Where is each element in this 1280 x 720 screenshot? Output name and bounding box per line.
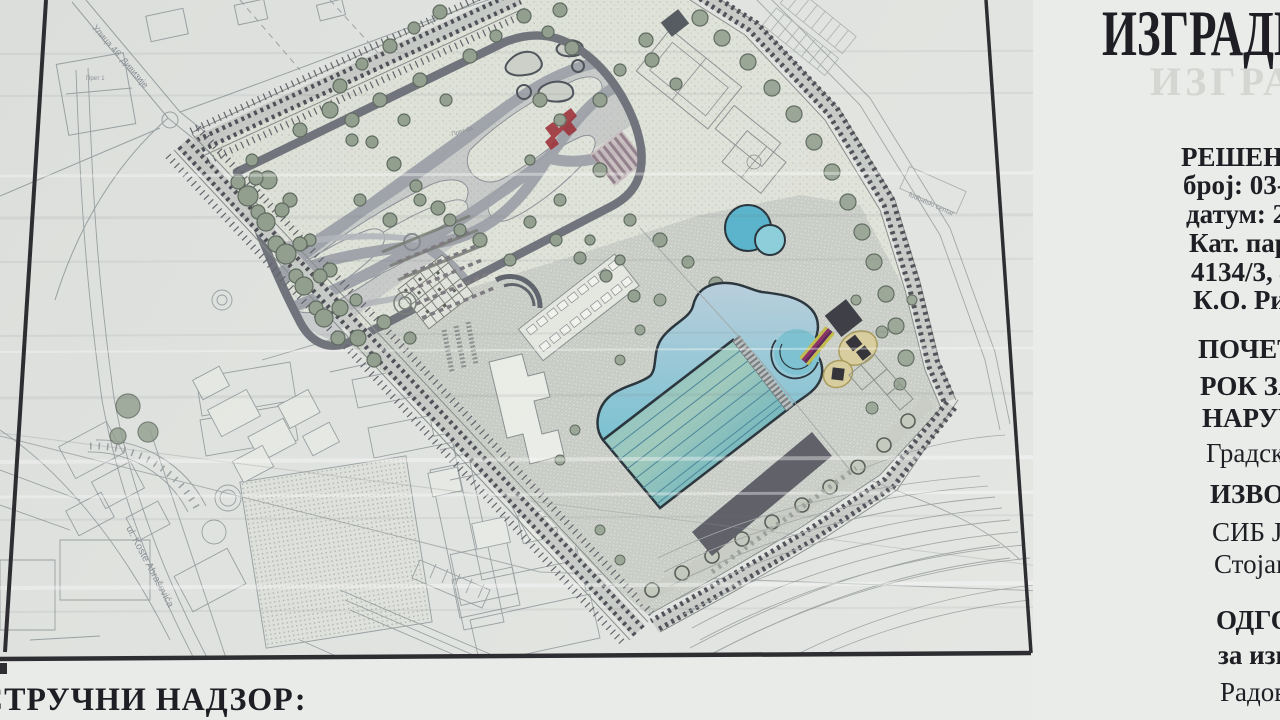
svg-text:број: 03-351-2: број: 03-351-2 [1183, 170, 1280, 200]
svg-text:ИЗВОЂАЧ: ИЗВОЂАЧ [1210, 479, 1280, 509]
svg-text:Кат. парцеле: Кат. парцеле [1189, 228, 1280, 258]
svg-text:Радован С: Радован С [1220, 677, 1280, 707]
svg-text:ПОЧЕТАК Р: ПОЧЕТАК Р [1198, 334, 1280, 364]
svg-text:СИБ ЈОВА: СИБ ЈОВА [1212, 517, 1280, 547]
svg-text:НАРУЧИЛА: НАРУЧИЛА [1202, 403, 1280, 433]
svg-text:СТРУЧНИ НАДЗОР:: СТРУЧНИ НАДЗОР: [0, 682, 307, 719]
svg-text:за извођењ: за извођењ [1218, 640, 1280, 670]
svg-text:ОДГОВОРН: ОДГОВОРН [1216, 605, 1280, 635]
svg-text:ИЗГРА: ИЗГРА [1150, 59, 1280, 104]
svg-text:Градскаоп: Градскаоп [1206, 438, 1280, 468]
svg-text:РЕШЕЊЕ О: РЕШЕЊЕ О [1181, 142, 1280, 172]
svg-text:К.О. Рибаре: К.О. Рибаре [1193, 285, 1280, 315]
svg-text:РОК ЗАВРШ: РОК ЗАВРШ [1200, 371, 1280, 401]
svg-text:4134/3, 4134: 4134/3, 4134 [1191, 257, 1280, 287]
svg-text:Стојан Ст: Стојан Ст [1214, 549, 1280, 579]
svg-text:датум: 27.06: датум: 27.06 [1186, 199, 1280, 229]
